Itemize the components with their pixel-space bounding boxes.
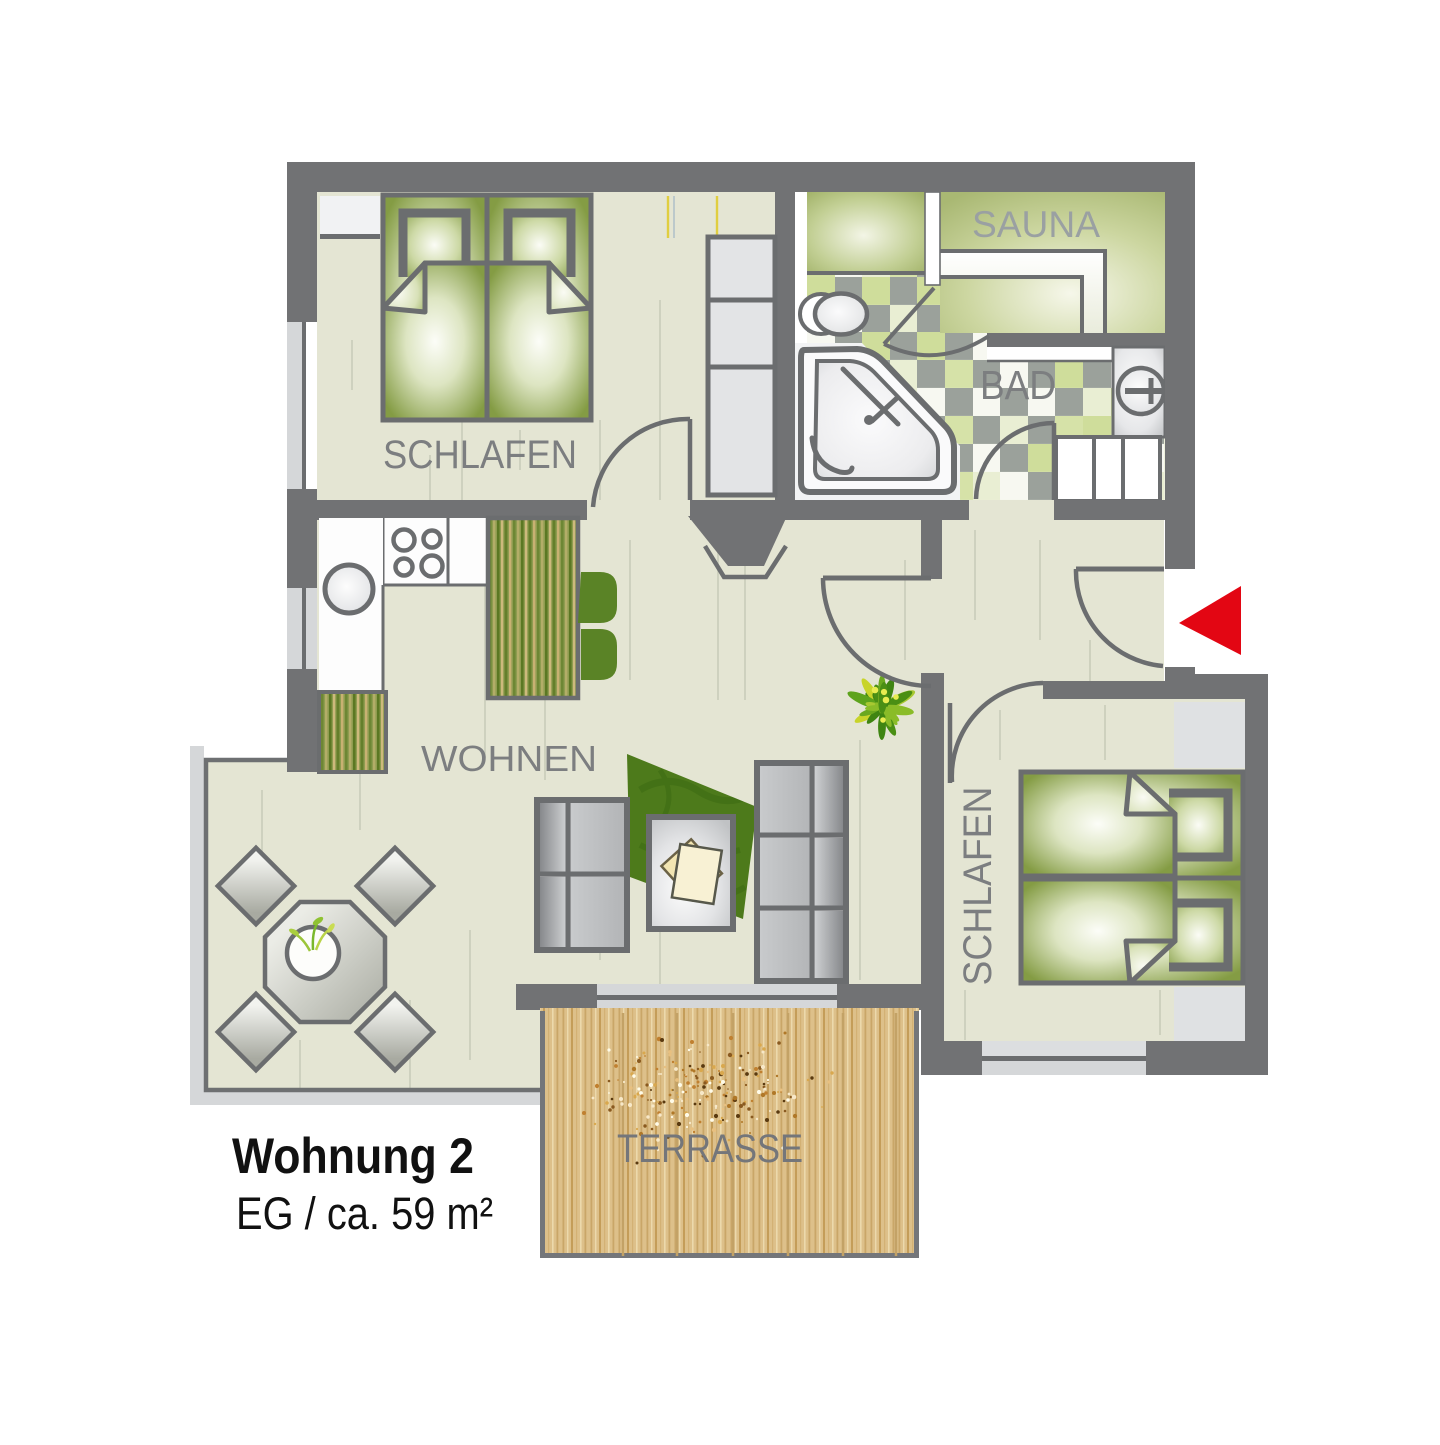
svg-text:Wohnung 2: Wohnung 2 — [232, 1128, 474, 1184]
svg-text:SCHLAFEN: SCHLAFEN — [956, 787, 1000, 986]
svg-text:WOHNEN: WOHNEN — [421, 738, 597, 779]
svg-text:SCHLAFEN: SCHLAFEN — [383, 433, 577, 477]
svg-text:TERRASSE: TERRASSE — [617, 1127, 803, 1171]
svg-text:EG / ca. 59 m²: EG / ca. 59 m² — [236, 1188, 493, 1239]
svg-text:BAD: BAD — [980, 362, 1056, 408]
svg-text:SAUNA: SAUNA — [972, 204, 1100, 245]
